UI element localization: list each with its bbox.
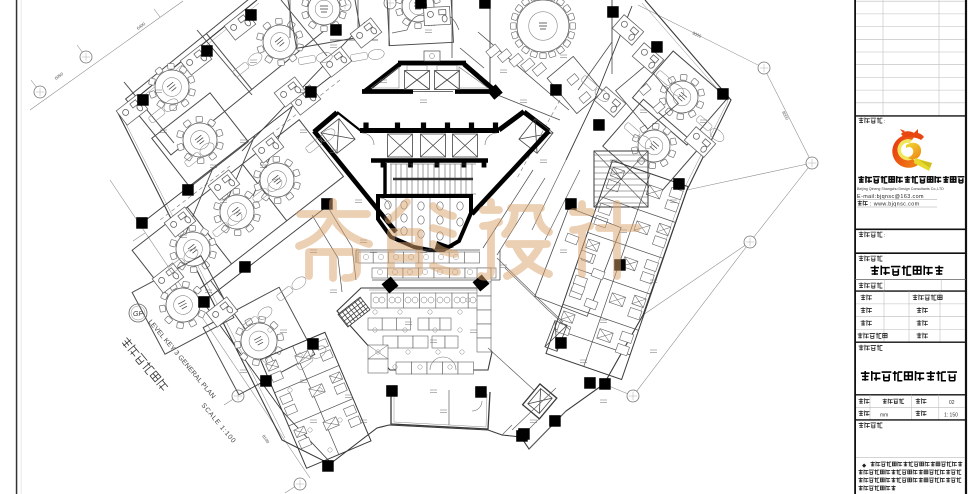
svg-text:E-mail:bjqnsc@163.com: E-mail:bjqnsc@163.com [857,194,924,200]
svg-text::: : [884,119,885,125]
svg-text::: : [884,233,885,239]
svg-text:Beijing Qineng Shangchu Design: Beijing Qineng Shangchu Design Consultan… [857,187,944,191]
svg-text:02: 02 [949,400,955,406]
svg-text:GP: GP [133,311,143,318]
svg-text:: www.bjqnsc.com: : www.bjqnsc.com [870,202,920,208]
svg-text:1: 150: 1: 150 [944,413,958,419]
svg-text:mm: mm [880,413,888,419]
